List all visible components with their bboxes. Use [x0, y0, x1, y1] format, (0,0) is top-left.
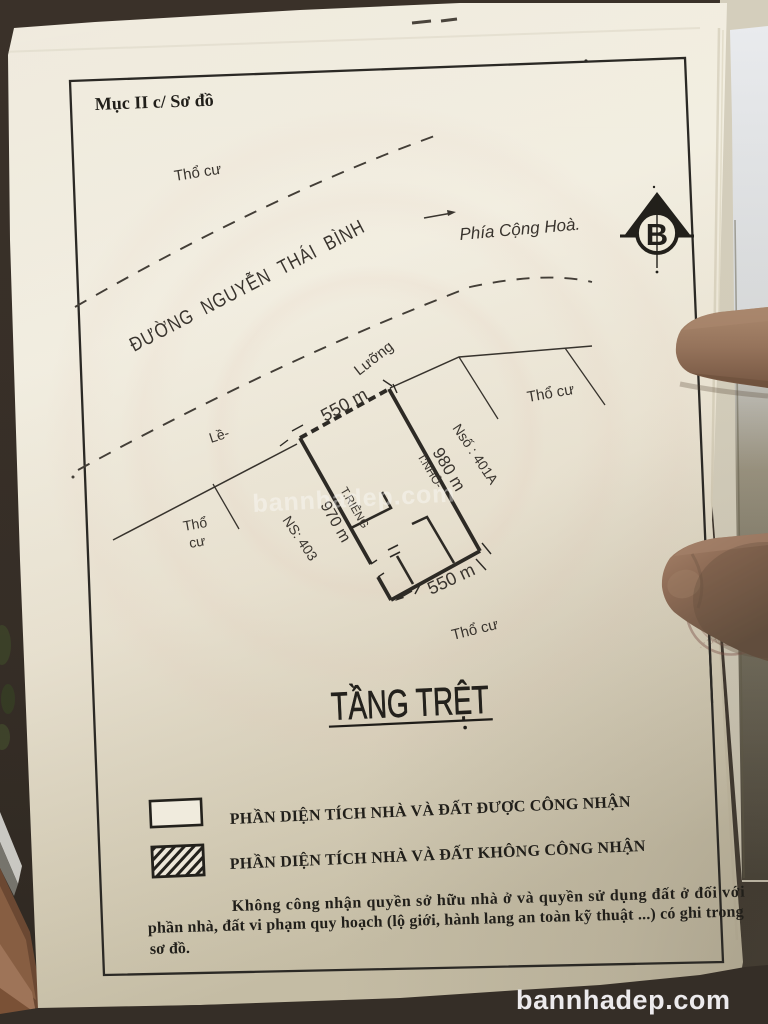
svg-text:cư: cư	[188, 532, 207, 551]
svg-text:sơ đồ.: sơ đồ.	[150, 940, 190, 958]
svg-text:bannhadep.com: bannhadep.com	[516, 985, 730, 1015]
